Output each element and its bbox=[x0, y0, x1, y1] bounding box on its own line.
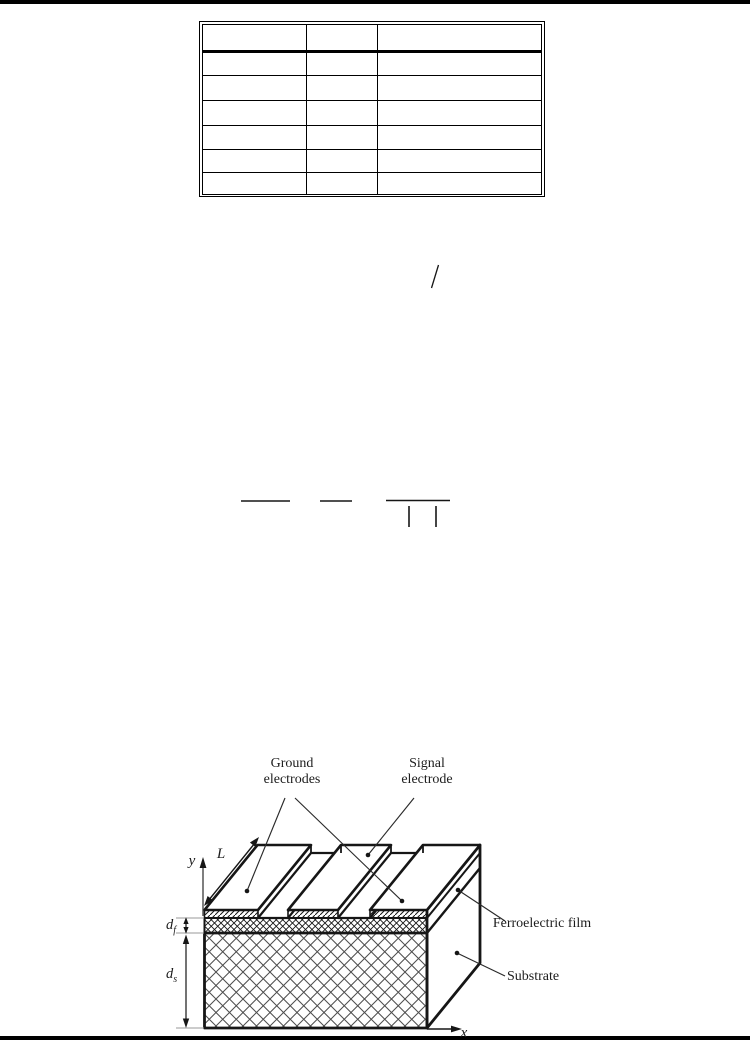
waveguide-diagram bbox=[176, 798, 505, 1032]
film-thickness-subscript: f bbox=[173, 925, 176, 936]
film-thickness-dimension bbox=[176, 917, 204, 933]
substrate-thickness-dimension bbox=[176, 935, 204, 1029]
x-axis-label: x bbox=[458, 1025, 470, 1042]
metal-front-center bbox=[288, 910, 338, 918]
metal-front-right bbox=[370, 910, 427, 918]
arrowhead bbox=[183, 1019, 189, 1029]
substrate-thickness-subscript: s bbox=[173, 974, 177, 985]
y-axis-label: y bbox=[186, 853, 198, 870]
y-axis-arrowhead bbox=[200, 857, 207, 868]
signal-electrode-label: Signal electrode bbox=[387, 756, 467, 788]
ground-electrodes-label: Ground electrodes bbox=[242, 756, 342, 788]
document-page: { "page": { "background": "#ffffff", "ed… bbox=[0, 0, 750, 1040]
film-thickness-label: df bbox=[166, 917, 176, 934]
metal-front-left bbox=[205, 910, 259, 918]
substrate-front bbox=[205, 933, 428, 1028]
substrate-thickness-label: ds bbox=[166, 966, 177, 983]
ferroelectric-film-label: Ferroelectric film bbox=[492, 916, 592, 932]
figure-layer bbox=[0, 0, 750, 1040]
length-label: L bbox=[214, 846, 228, 863]
formula-remnants bbox=[241, 265, 450, 527]
substrate-label: Substrate bbox=[507, 969, 587, 985]
ferroelectric-film-front bbox=[205, 918, 428, 933]
arrowhead bbox=[183, 935, 189, 945]
x-axis bbox=[427, 1026, 462, 1033]
formula-slash bbox=[432, 265, 439, 288]
